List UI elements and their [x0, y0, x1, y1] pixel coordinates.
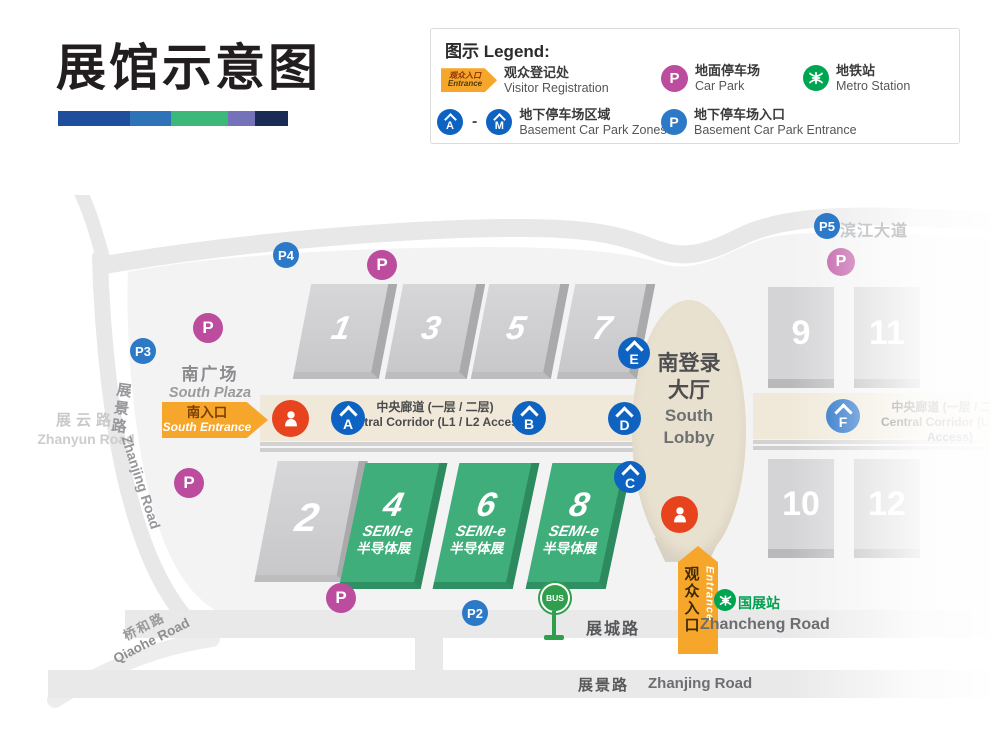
zone-badge-c: C: [614, 461, 646, 493]
south-lobby-label: 南登录 大厅 South Lobby: [632, 350, 746, 449]
chevron-up-icon: [625, 340, 643, 358]
exhibition-map-page: 展馆示意图 图示 Legend: 观众入口 Entrance 观众登记处 Vis…: [0, 0, 990, 738]
basement-parking-entrance-icon: P: [661, 109, 687, 135]
surface-parking-left-lower: P: [174, 468, 204, 498]
legend-item-car-park: P 地面停车场 Car Park: [661, 63, 760, 94]
zone-shield-m-icon: M: [486, 109, 512, 135]
venue-map: 中央廊道 (一层 / 二层) Central Corridor (L1 / L2…: [0, 195, 990, 738]
zone-badge-b: B: [512, 401, 546, 435]
title-bar-segment: [171, 111, 228, 126]
visitor-entrance-arrow: 观众入口 Entrance: [678, 546, 718, 654]
legend-item-basement-zones: A - M 地下停车场区域 Basement Car Park Zones: [437, 107, 667, 138]
zhanjing-road-bottom-label-en: Zhanjing Road: [648, 675, 752, 692]
chevron-up-icon: [621, 464, 639, 482]
title-bar-segment: [255, 111, 288, 126]
legend-title: 图示 Legend:: [445, 37, 550, 62]
binjiang-avenue-label: 滨江大道: [840, 217, 908, 241]
zhancheng-road-label-en: Zhancheng Road: [700, 616, 830, 634]
zone-range-dash: -: [472, 113, 477, 131]
hall-9: 9: [768, 287, 834, 388]
hall-11: 11: [854, 287, 920, 388]
bus-stop-pole: [552, 611, 556, 637]
title-color-bar: [58, 111, 288, 126]
surface-parking-right: P: [827, 248, 855, 276]
parking-entrance-p4: P4: [273, 242, 299, 268]
south-entrance-arrow: 南入口 South Entrance: [162, 402, 268, 438]
legend-item-basement-entrance: P 地下停车场入口 Basement Car Park Entrance: [661, 107, 857, 138]
page-title: 展馆示意图: [56, 28, 321, 100]
south-plaza-label: 南广场 South Plaza: [150, 365, 270, 403]
visitor-entrance-icon: 观众入口 Entrance: [441, 68, 497, 92]
hall-10: 10: [768, 459, 834, 558]
parking-entrance-p3: P3: [130, 338, 156, 364]
surface-parking-top: P: [367, 250, 397, 280]
chevron-up-icon: [339, 405, 357, 423]
zone-shield-a-icon: A: [437, 109, 463, 135]
chevron-up-icon: [520, 405, 538, 423]
guozhan-station-label: 国展站: [738, 593, 780, 613]
chevron-up-icon: [834, 403, 852, 421]
bus-stop-base: [544, 635, 564, 640]
legend-item-metro: 地铁站 Metro Station: [803, 63, 910, 94]
zone-badge-f: F: [826, 399, 860, 433]
zhancheng-road-label-zh: 展城路: [586, 615, 640, 639]
zhanjing-road-bottom-label-zh: 展景路: [578, 674, 629, 695]
zhancheng-road-band: [125, 610, 990, 638]
surface-parking-icon: P: [661, 65, 688, 92]
title-bar-segment: [58, 111, 130, 126]
road-connector: [415, 638, 443, 672]
metro-icon: [803, 65, 829, 91]
bus-stop-icon: BUS: [540, 583, 570, 613]
title-bar-segment: [130, 111, 171, 126]
legend-box: 图示 Legend: 观众入口 Entrance 观众登记处 Visitor R…: [430, 28, 960, 144]
chevron-up-icon: [615, 406, 633, 424]
visitor-registration-icon-south-entrance: [272, 400, 309, 437]
zone-badge-e: E: [618, 337, 650, 369]
zhanjing-road-band-bottom: [48, 670, 990, 698]
hall-12: 12: [854, 459, 920, 558]
parking-entrance-p5: P5: [814, 213, 840, 239]
central-corridor-label-right: 中央廊道 (一层 / 二层) Central Corridor (L1 / L2…: [870, 400, 990, 445]
surface-parking-left-upper: P: [193, 313, 223, 343]
corridor-steps: [260, 442, 652, 452]
zone-badge-a: A: [331, 401, 365, 435]
visitor-registration-icon-lobby: [661, 496, 698, 533]
title-bar-segment: [228, 111, 255, 126]
zone-badge-d: D: [608, 402, 641, 435]
legend-item-visitor-registration: 观众入口 Entrance 观众登记处 Visitor Registration: [441, 65, 609, 96]
surface-parking-bottom: P: [326, 583, 356, 613]
metro-icon-map: [714, 589, 736, 611]
parking-entrance-p2: P2: [462, 600, 488, 626]
